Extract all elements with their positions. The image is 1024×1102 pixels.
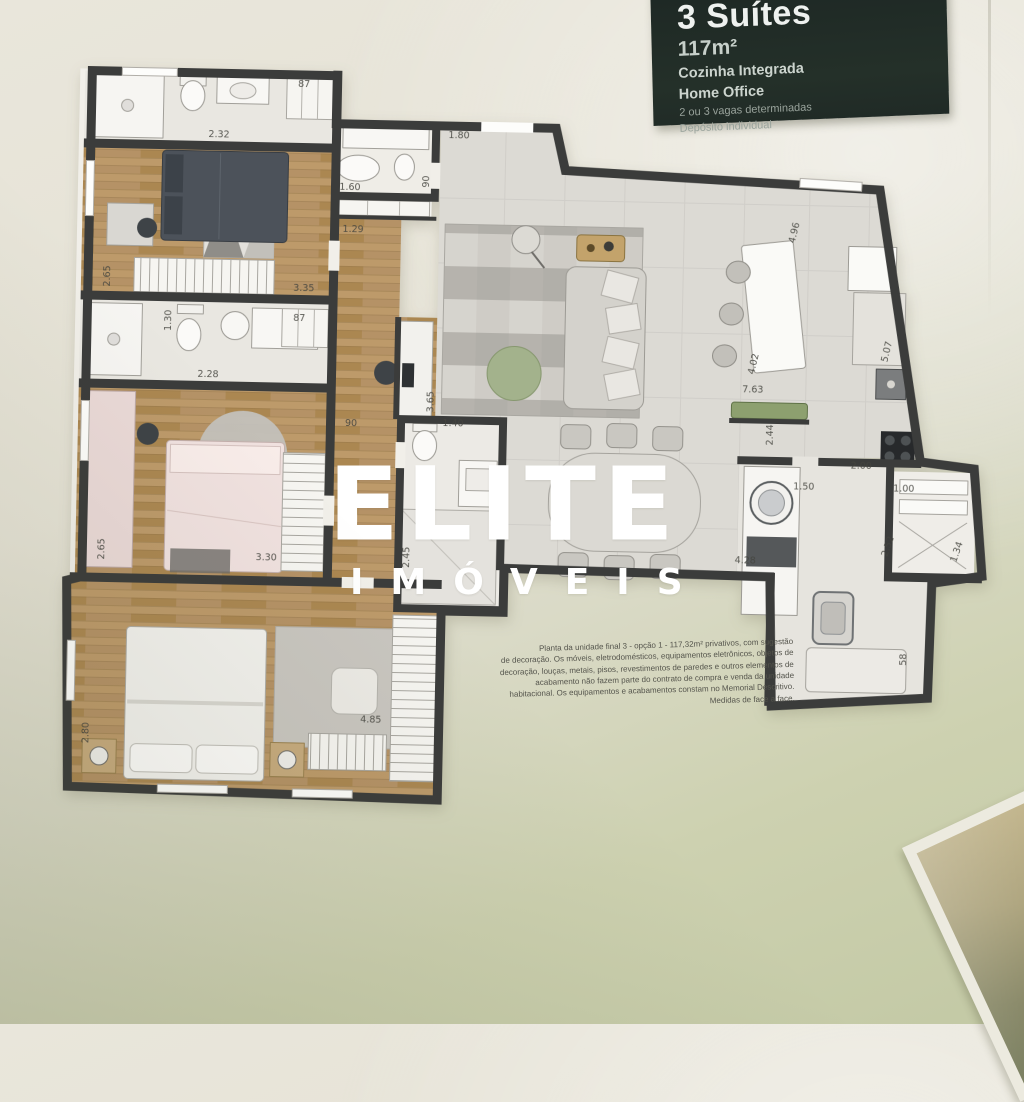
tray-table-icon [576, 235, 625, 262]
dimension-label: 90 [421, 175, 432, 187]
planter-icon [731, 402, 807, 420]
disclaimer-text: Planta da unidade final 3 - opção 1 - 11… [497, 636, 795, 712]
dimension-label: 1.30 [163, 310, 174, 331]
spec-card: 3 Suítes 117m² Cozinha Integrada Home Of… [650, 0, 949, 126]
dining-table-icon [547, 452, 701, 553]
dimension-label: 1.60 [339, 182, 360, 193]
dimension-label: 58 [898, 654, 909, 666]
dimension-label: 1.50 [793, 481, 814, 492]
dimension-label: 2.00 [851, 461, 872, 472]
sink-icon [230, 82, 256, 99]
stool-icon [726, 261, 750, 283]
washbasin-icon [337, 155, 380, 182]
toilet-icon [181, 80, 206, 110]
toilet-icon [412, 430, 437, 460]
dimension-label: 2.28 [197, 369, 218, 380]
dimension-label: 1.80 [448, 130, 469, 141]
dimension-label: 90 [345, 418, 357, 429]
dimension-label: 87 [293, 313, 305, 324]
pouf-icon [331, 668, 378, 715]
dimension-label: 3.65 [425, 391, 436, 412]
stool-icon [712, 345, 736, 367]
dimension-label: 1.29 [342, 224, 363, 235]
dimension-label: 2.65 [102, 265, 113, 286]
wardrobe-icon [390, 615, 437, 782]
floor-plan-drawing: 2.32872.653.351.302.28872.653.302.804.85… [37, 60, 1003, 840]
monitor-icon [402, 363, 415, 387]
dimension-label: 3.30 [256, 552, 277, 563]
bench-icon [170, 548, 230, 573]
dimension-label: 2.32 [208, 129, 229, 140]
sink-icon [221, 311, 250, 340]
photo-of-floorplan-board: { "info_card": { "title": "3 Suítes", "a… [0, 0, 1024, 1024]
dimension-label: 2.65 [96, 538, 107, 559]
dimension-label: 87 [298, 79, 310, 90]
dimension-label: 2.80 [80, 722, 91, 743]
shelf-icon [899, 500, 967, 515]
shoe-rack-icon [308, 733, 387, 771]
wardrobe-icon [281, 453, 325, 572]
dimension-label: 1.40 [442, 418, 463, 429]
desk-icon [84, 391, 136, 568]
floor-lamp-icon [512, 225, 541, 254]
dimension-label: 1.00 [893, 483, 914, 494]
dimension-label: 4.85 [360, 714, 381, 725]
dimension-label: 7.63 [742, 384, 763, 395]
dimension-label: 3.35 [293, 283, 314, 294]
dimension-label: 2.44 [765, 424, 776, 445]
green-pouf-icon [487, 346, 542, 401]
wardrobe-icon [134, 258, 275, 295]
floor-plan: 2.32872.653.351.302.28872.653.302.804.85… [37, 60, 1003, 840]
toilet-icon [394, 154, 415, 180]
stool-icon [719, 303, 743, 325]
suite3-bedroom [82, 609, 437, 785]
lamp-icon [278, 751, 296, 769]
closet-icon [337, 200, 429, 217]
toilet-icon [177, 318, 202, 350]
dimension-label: 2.45 [401, 547, 412, 568]
dimension-label: 4.28 [735, 555, 756, 566]
lamp-icon [90, 747, 108, 765]
counter-icon [806, 648, 907, 694]
shower-drain-icon [122, 99, 134, 111]
